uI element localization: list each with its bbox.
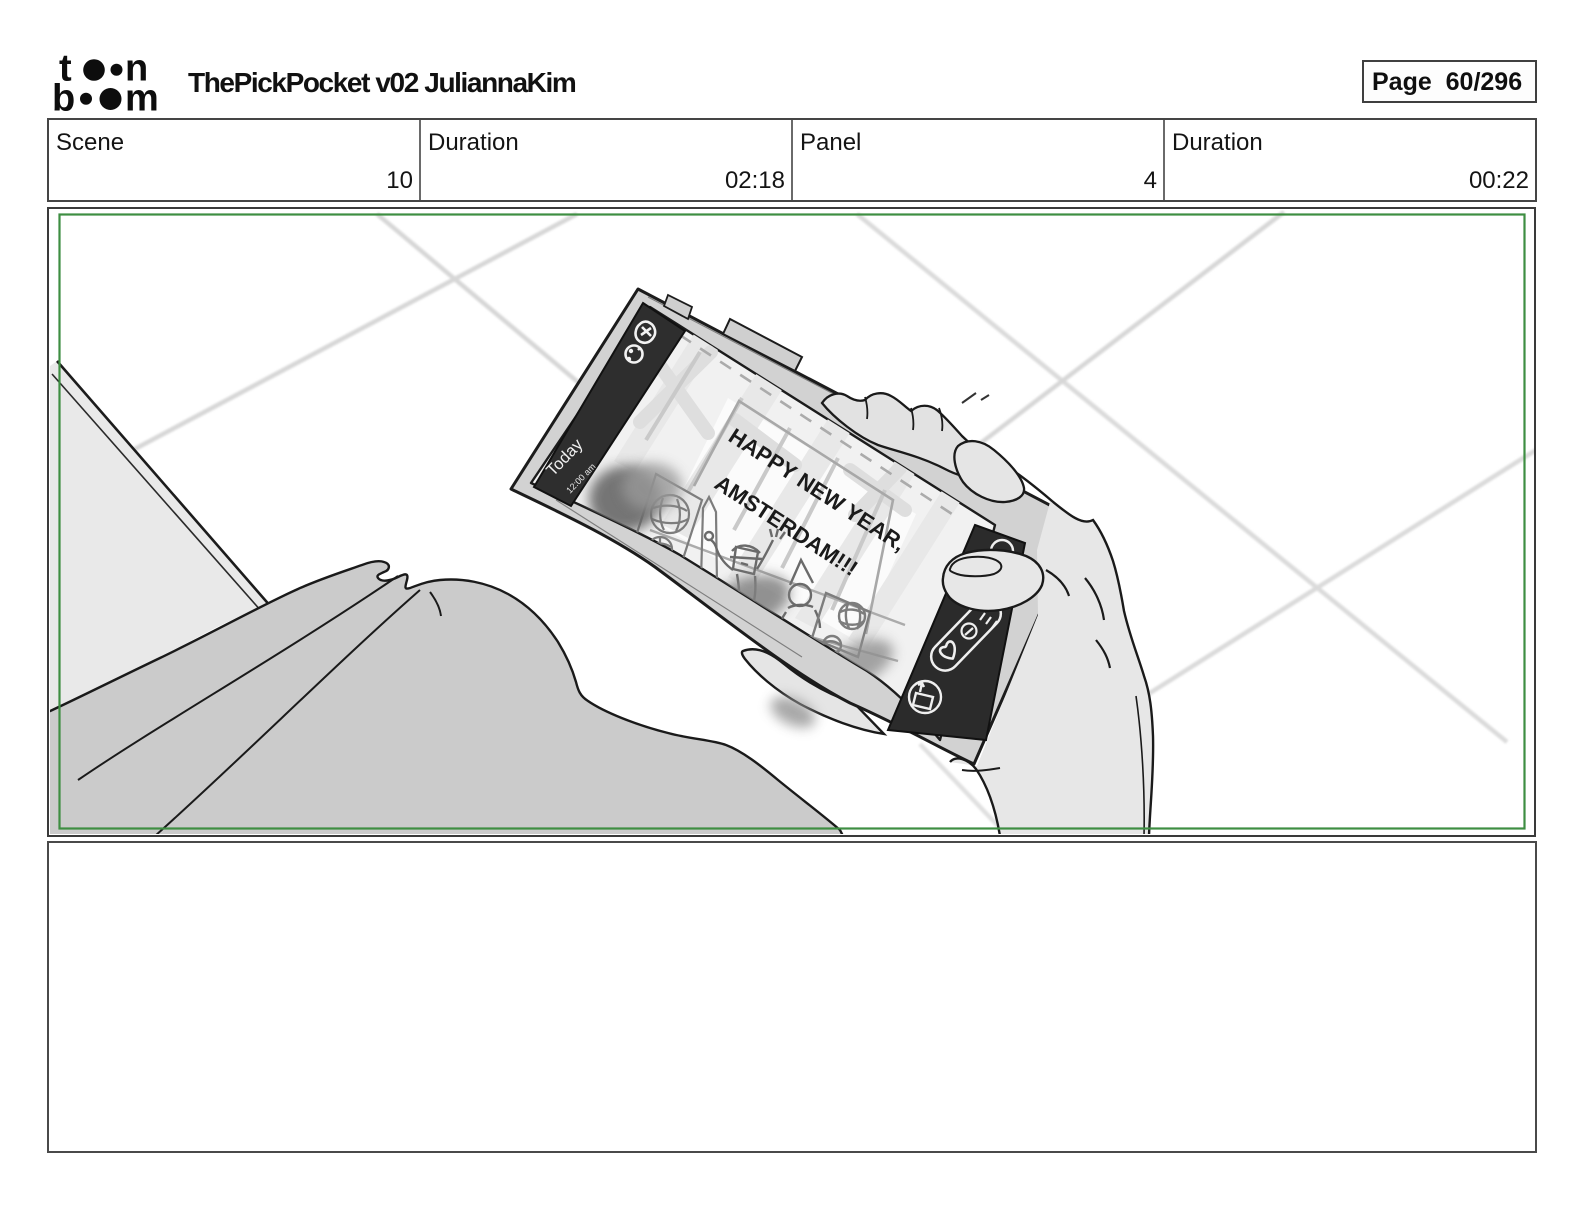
svg-text:Duration: Duration bbox=[428, 129, 519, 156]
svg-text:Scene: Scene bbox=[56, 129, 124, 156]
svg-text:10: 10 bbox=[386, 167, 413, 194]
svg-text:00:22: 00:22 bbox=[1469, 167, 1529, 194]
svg-text:b: b bbox=[52, 78, 75, 120]
svg-text:m: m bbox=[125, 78, 159, 120]
svg-text:Panel: Panel bbox=[800, 129, 861, 156]
svg-text:Page 60/296: Page 60/296 bbox=[1372, 68, 1522, 96]
svg-text:4: 4 bbox=[1144, 167, 1157, 194]
svg-text:Duration: Duration bbox=[1172, 129, 1263, 156]
svg-text:ThePickPocket v02 JuliannaKim: ThePickPocket v02 JuliannaKim bbox=[188, 67, 576, 98]
svg-text:02:18: 02:18 bbox=[725, 167, 785, 194]
